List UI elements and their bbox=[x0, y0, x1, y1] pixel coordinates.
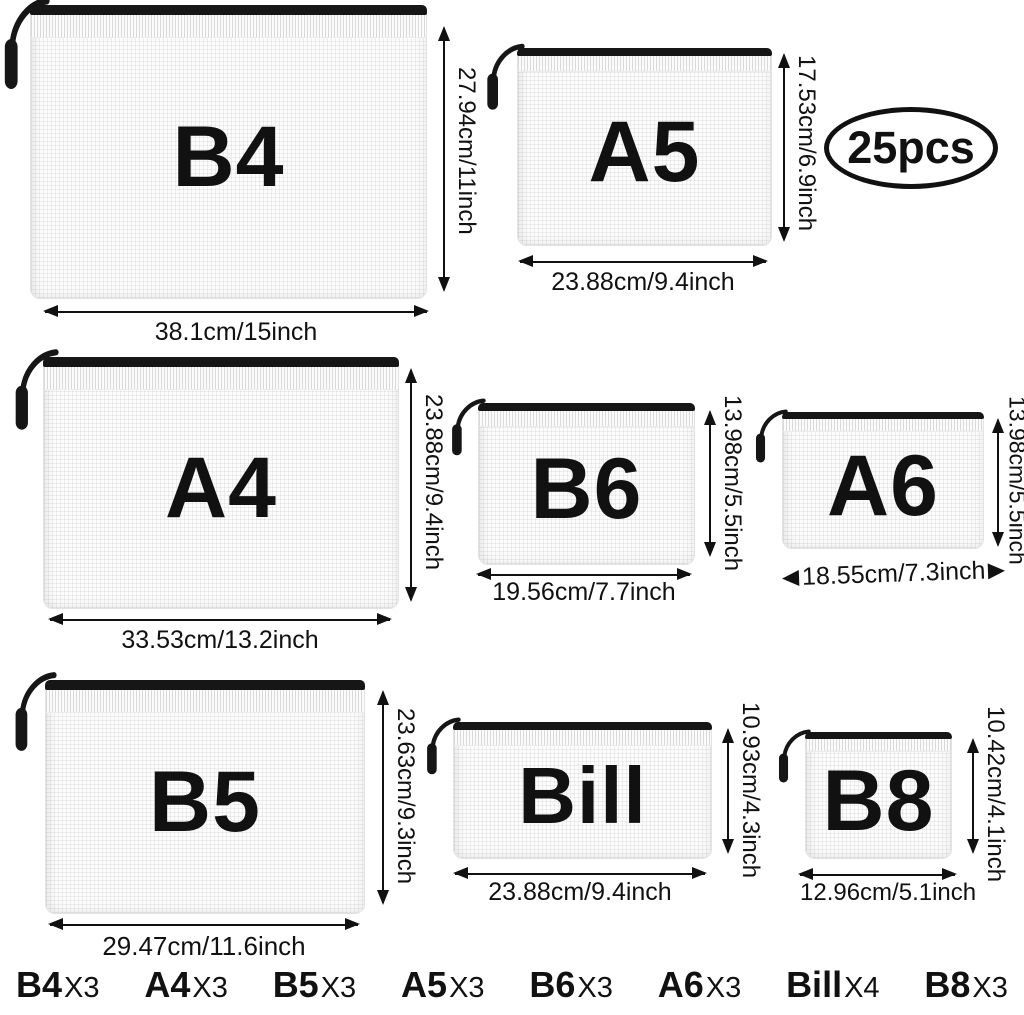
zipper bbox=[782, 412, 984, 419]
width-dimension: 19.56cm/7.7inch bbox=[478, 574, 690, 607]
pouch-size-label: A6 bbox=[827, 433, 939, 529]
height-arrow bbox=[410, 370, 412, 600]
pouch-group-b6: B6 13.98cm/5.5inch 19.56cm/7.7inch bbox=[478, 403, 748, 613]
zipper bbox=[30, 5, 427, 15]
pouch-size-label: B8 bbox=[823, 748, 935, 844]
width-dimension: 23.88cm/9.4inch bbox=[455, 873, 705, 907]
zipper-tape bbox=[806, 739, 951, 752]
quantity-item-b8: B8X3 bbox=[924, 964, 1008, 1006]
width-dimension-label: 23.88cm/9.4inch bbox=[455, 878, 705, 907]
zipper bbox=[453, 722, 712, 730]
pouch-size-label: B5 bbox=[149, 749, 261, 845]
height-arrow bbox=[382, 692, 384, 903]
arrow-right-icon bbox=[988, 562, 1006, 579]
pouch-body-a6: A6 bbox=[782, 412, 984, 549]
width-arrow bbox=[478, 574, 690, 576]
zipper-pull-icon bbox=[425, 716, 461, 778]
width-dimension-label: 19.56cm/7.7inch bbox=[478, 578, 690, 607]
width-arrow bbox=[45, 311, 427, 313]
quantity-item-b6: B6X3 bbox=[529, 964, 613, 1006]
height-dimension-label: 10.93cm/4.3inch bbox=[737, 680, 763, 900]
zipper-tape bbox=[479, 411, 694, 427]
pouch-body-bill: Bill bbox=[453, 722, 712, 859]
zipper-tape bbox=[31, 15, 426, 38]
width-arrow bbox=[50, 619, 390, 621]
width-dimension-label: 38.1cm/15inch bbox=[45, 318, 427, 347]
quantity-item-a6: A6X3 bbox=[658, 964, 742, 1006]
zipper-pull-icon bbox=[13, 347, 59, 435]
product-size-diagram: B4 27.94cm/11inch 38.1cm/15inch A5 17.53… bbox=[0, 0, 1024, 1015]
quantity-item-a5: A5X3 bbox=[401, 964, 485, 1006]
quantity-count: X4 bbox=[844, 972, 879, 1005]
quantity-count: X3 bbox=[64, 972, 99, 1005]
width-arrow bbox=[50, 924, 358, 926]
quantity-item-bill: BillX4 bbox=[786, 964, 880, 1006]
height-arrow bbox=[727, 730, 729, 852]
pouch-body-b6: B6 bbox=[478, 403, 695, 565]
width-dimension: 33.53cm/13.2inch bbox=[50, 619, 390, 655]
quantity-count: X3 bbox=[321, 972, 356, 1005]
quantity-size: B4 bbox=[16, 964, 62, 1006]
height-dimension-label: 23.63cm/9.3inch bbox=[392, 661, 418, 931]
zipper-tape bbox=[44, 367, 398, 390]
quantity-item-b5: B5X3 bbox=[273, 964, 357, 1006]
height-dimension-label: 13.98cm/5.5inch bbox=[719, 373, 745, 593]
pouch-group-a6: A6 13.98cm/5.5inch 18.55cm/7.3inch bbox=[782, 412, 1024, 612]
height-arrow bbox=[709, 412, 711, 555]
zipper bbox=[517, 48, 772, 56]
pouch-group-a5: A5 17.53cm/6.9inch 23.88cm/9.4inch bbox=[517, 48, 817, 298]
zipper bbox=[43, 357, 399, 367]
width-dimension: 29.47cm/11.6inch bbox=[50, 924, 358, 962]
height-dimension-label: 23.88cm/9.4inch bbox=[420, 342, 446, 622]
height-arrow bbox=[443, 28, 445, 290]
zipper bbox=[478, 403, 695, 411]
zipper-tape bbox=[518, 56, 771, 72]
width-dimension-label: 12.96cm/5.1inch bbox=[800, 879, 955, 907]
pouch-size-label: Bill bbox=[518, 746, 646, 836]
pouch-size-label: B6 bbox=[531, 436, 643, 532]
quantity-count: X3 bbox=[449, 972, 484, 1005]
quantity-item-b4: B4X3 bbox=[16, 964, 100, 1006]
zipper-pull-icon bbox=[13, 670, 57, 756]
pouch-size-label: A5 bbox=[589, 99, 701, 195]
arrow-left-icon bbox=[782, 569, 800, 586]
width-dimension: 38.1cm/15inch bbox=[45, 311, 427, 347]
zipper bbox=[805, 732, 952, 739]
quantity-size: A5 bbox=[401, 964, 447, 1006]
pouch-group-b5: B5 23.63cm/9.3inch 29.47cm/11.6inch bbox=[45, 680, 445, 965]
quantity-size: B8 bbox=[924, 964, 970, 1006]
zipper-pull-icon bbox=[777, 728, 811, 786]
width-dimension: 18.55cm/7.3inch bbox=[782, 556, 988, 592]
height-dimension-label: 27.94cm/11inch bbox=[453, 5, 479, 297]
pouch-group-bill: Bill 10.93cm/4.3inch 23.88cm/9.4inch bbox=[453, 722, 763, 922]
height-arrow bbox=[972, 740, 974, 852]
height-arrow bbox=[783, 55, 785, 240]
width-arrow bbox=[455, 873, 705, 875]
quantity-size: B5 bbox=[273, 964, 319, 1006]
pouch-group-b4: B4 27.94cm/11inch 38.1cm/15inch bbox=[30, 5, 500, 350]
quantity-count: X3 bbox=[577, 972, 612, 1005]
pouch-size-label: A4 bbox=[165, 435, 277, 531]
quantity-item-a4: A4X3 bbox=[144, 964, 228, 1006]
quantity-size: A6 bbox=[658, 964, 704, 1006]
zipper-pull-icon bbox=[485, 42, 525, 114]
width-dimension-label: 23.88cm/9.4inch bbox=[520, 268, 766, 297]
height-dimension-label: 17.53cm/6.9inch bbox=[793, 23, 819, 263]
height-dimension-label: 10.42cm/4.1inch bbox=[982, 694, 1008, 894]
zipper bbox=[45, 680, 365, 690]
width-dimension-label: 33.53cm/13.2inch bbox=[50, 626, 390, 655]
quantity-badge: 25pcs bbox=[824, 107, 998, 189]
width-dimension-label: 18.55cm/7.3inch bbox=[802, 556, 986, 591]
pouch-group-a4: A4 23.88cm/9.4inch 33.53cm/13.2inch bbox=[43, 357, 473, 657]
pouch-body-a4: A4 bbox=[43, 357, 399, 609]
zipper-tape bbox=[454, 730, 711, 746]
zipper-tape bbox=[46, 690, 364, 713]
quantity-size: A4 bbox=[144, 964, 190, 1006]
height-dimension-label: 13.98cm/5.5inch bbox=[1004, 370, 1024, 590]
zipper-pull-icon bbox=[450, 397, 486, 459]
quantity-size: B6 bbox=[529, 964, 575, 1006]
quantity-count: X3 bbox=[706, 972, 741, 1005]
width-dimension: 12.96cm/5.1inch bbox=[800, 874, 955, 907]
quantity-summary-row: B4X3 A4X3 B5X3 A5X3 B6X3 A6X3 BillX4 B8X… bbox=[0, 964, 1024, 1006]
pouch-body-b4: B4 bbox=[30, 5, 427, 299]
quantity-count: X3 bbox=[972, 972, 1007, 1005]
pouch-body-b8: B8 bbox=[805, 732, 952, 859]
width-arrow bbox=[800, 874, 955, 876]
quantity-count: X3 bbox=[192, 972, 227, 1005]
pouch-size-label: B4 bbox=[173, 104, 285, 200]
zipper-tape bbox=[783, 419, 983, 432]
width-dimension-label: 29.47cm/11.6inch bbox=[50, 931, 358, 962]
zipper-pull-icon bbox=[2, 0, 50, 95]
quantity-size: Bill bbox=[786, 964, 842, 1006]
pouch-body-b5: B5 bbox=[45, 680, 365, 914]
width-arrow bbox=[520, 261, 766, 263]
pouch-group-b8: B8 10.42cm/4.1inch 12.96cm/5.1inch bbox=[805, 732, 1005, 922]
width-dimension: 23.88cm/9.4inch bbox=[520, 261, 766, 297]
zipper-pull-icon bbox=[754, 408, 788, 466]
pouch-body-a5: A5 bbox=[517, 48, 772, 246]
height-arrow bbox=[997, 420, 999, 545]
